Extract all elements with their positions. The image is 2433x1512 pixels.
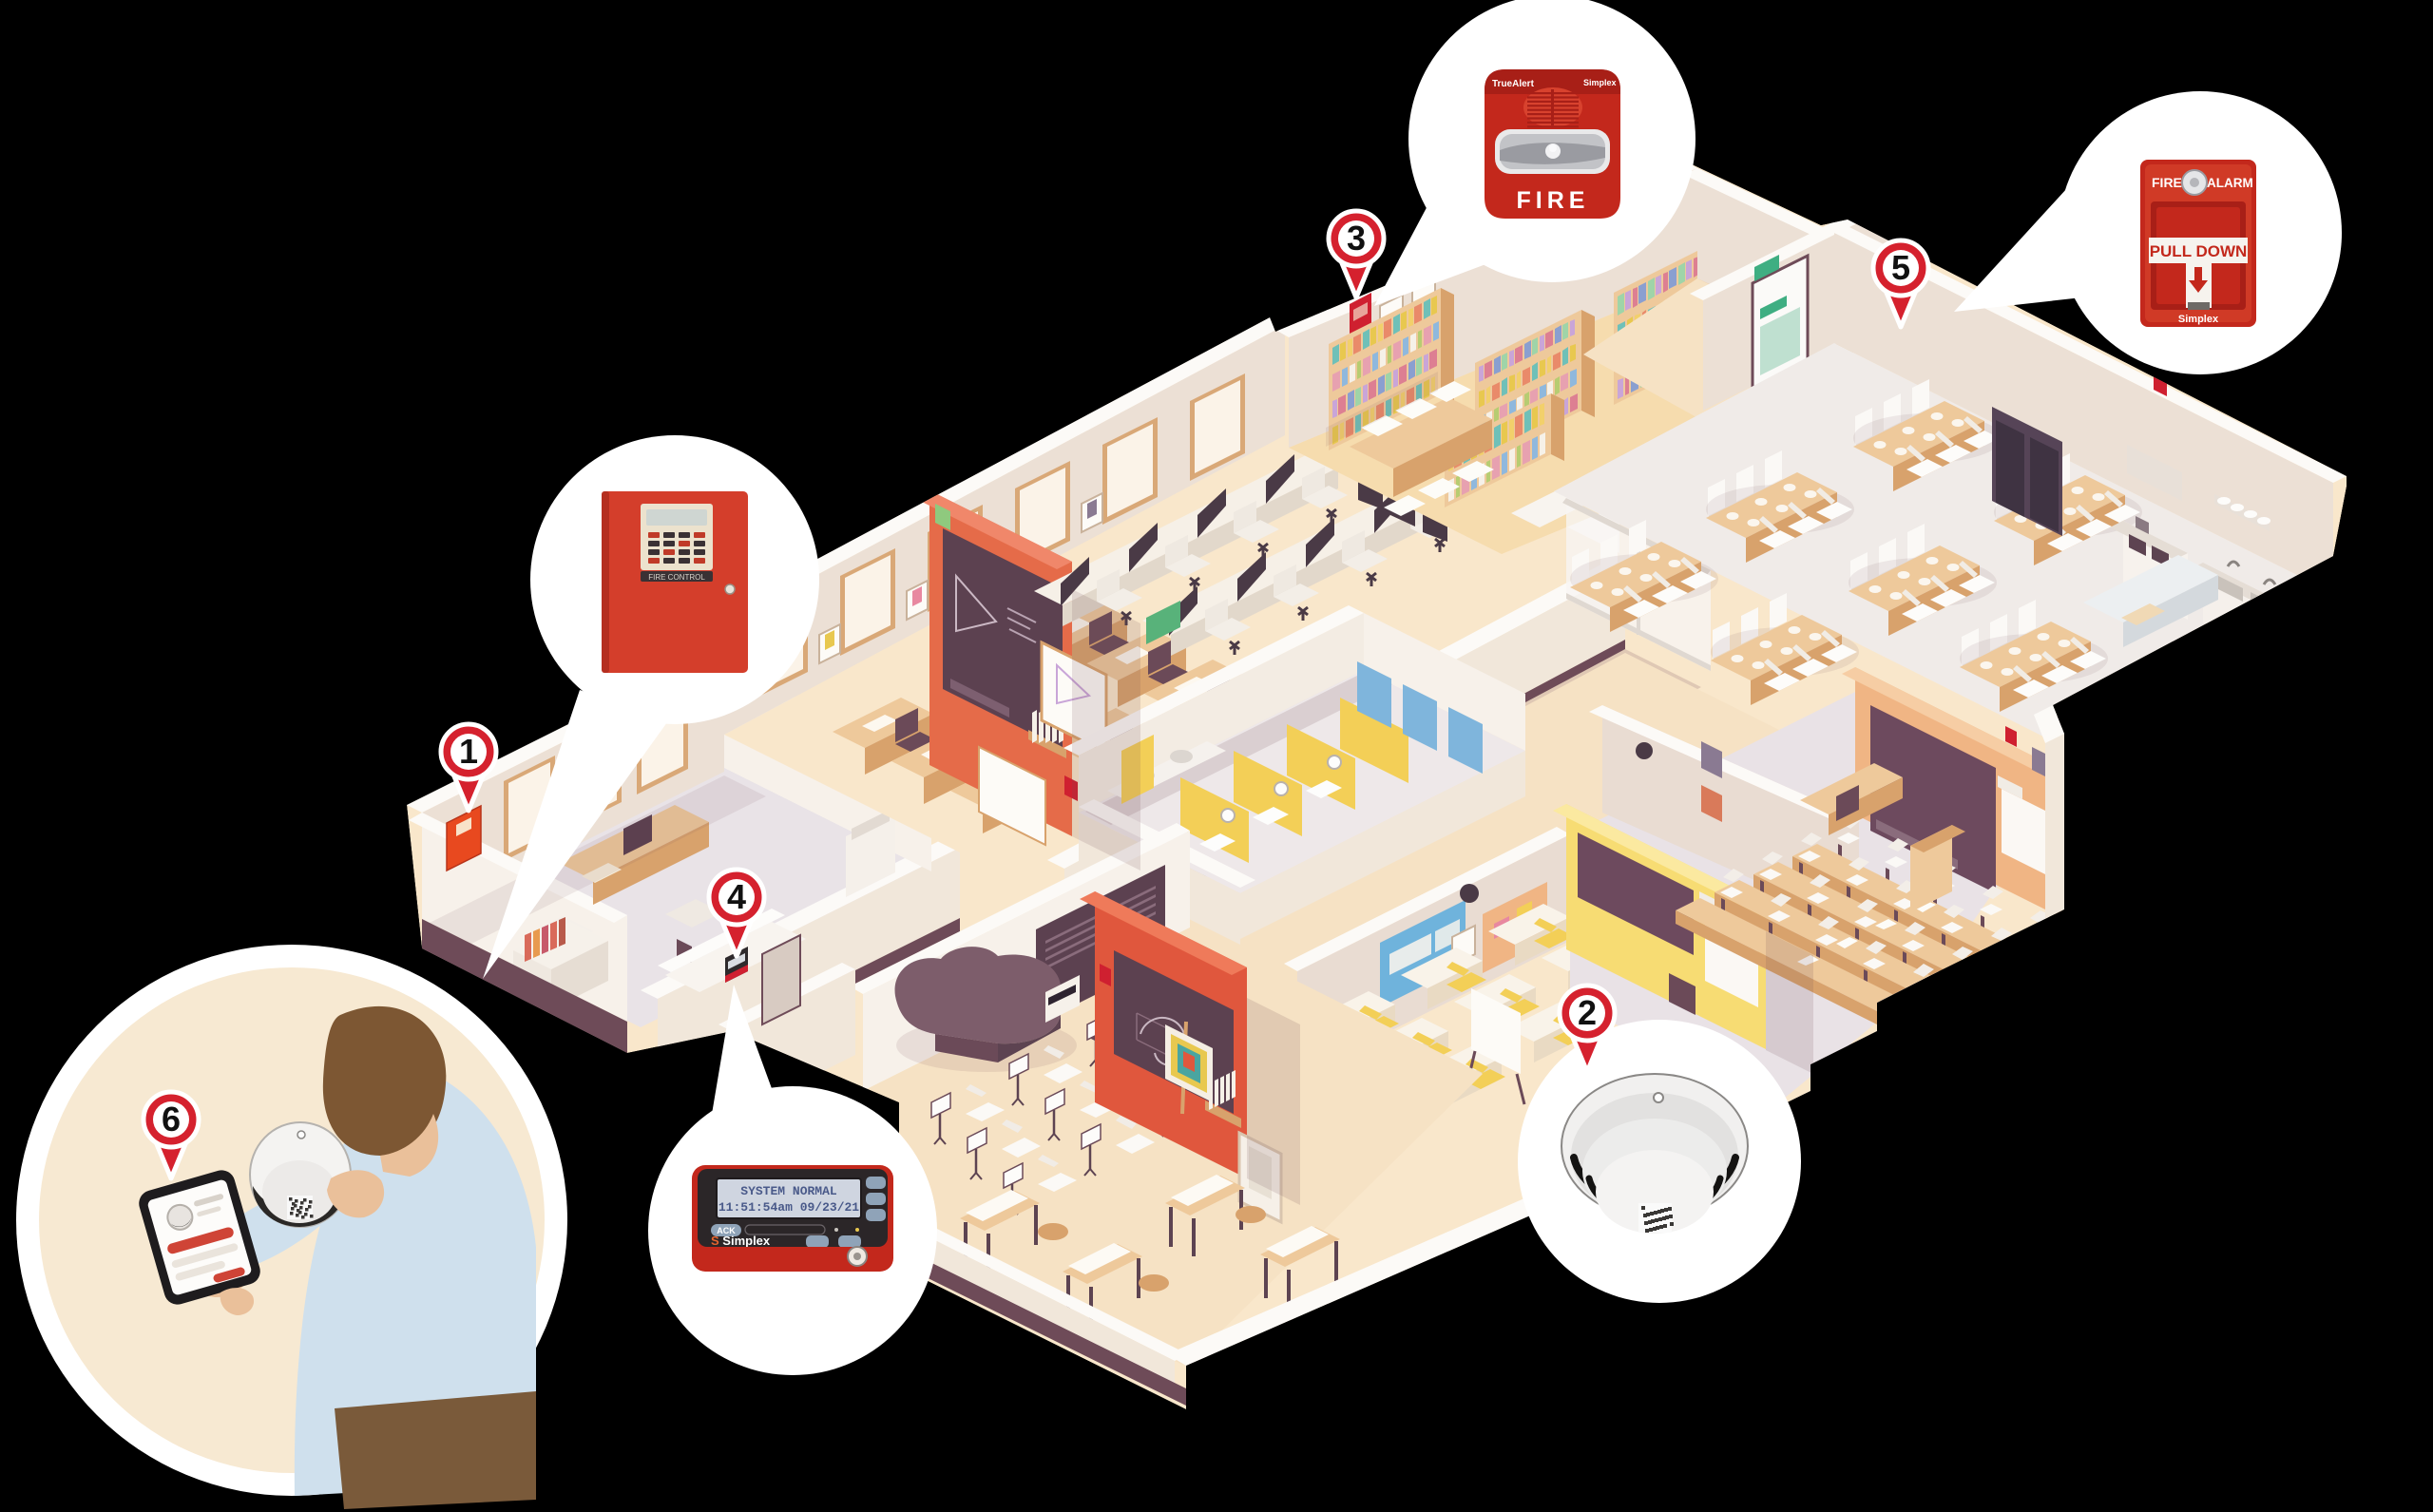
svg-text:1: 1 <box>459 732 478 771</box>
svg-text:SYSTEM NORMAL: SYSTEM NORMAL <box>740 1184 837 1198</box>
svg-text:3: 3 <box>1347 219 1366 258</box>
svg-text:4: 4 <box>727 877 746 916</box>
svg-text:Simplex: Simplex <box>1583 78 1617 87</box>
svg-text:6: 6 <box>162 1100 181 1139</box>
svg-text:5: 5 <box>1891 248 1910 287</box>
svg-text:FIRE: FIRE <box>1517 187 1590 214</box>
svg-text:FIRE: FIRE <box>2152 175 2182 190</box>
svg-text:PULL DOWN: PULL DOWN <box>2150 242 2248 260</box>
svg-text:2: 2 <box>1578 993 1597 1032</box>
svg-text:ALARM: ALARM <box>2207 176 2253 190</box>
svg-text:TrueAlert: TrueAlert <box>1492 79 1535 89</box>
svg-text:Simplex: Simplex <box>2178 314 2219 325</box>
svg-text:FIRE CONTROL: FIRE CONTROL <box>648 573 705 582</box>
svg-text:S Simplex: S Simplex <box>711 1234 771 1248</box>
svg-text:11:51:54am 09/23/21: 11:51:54am 09/23/21 <box>718 1200 859 1215</box>
